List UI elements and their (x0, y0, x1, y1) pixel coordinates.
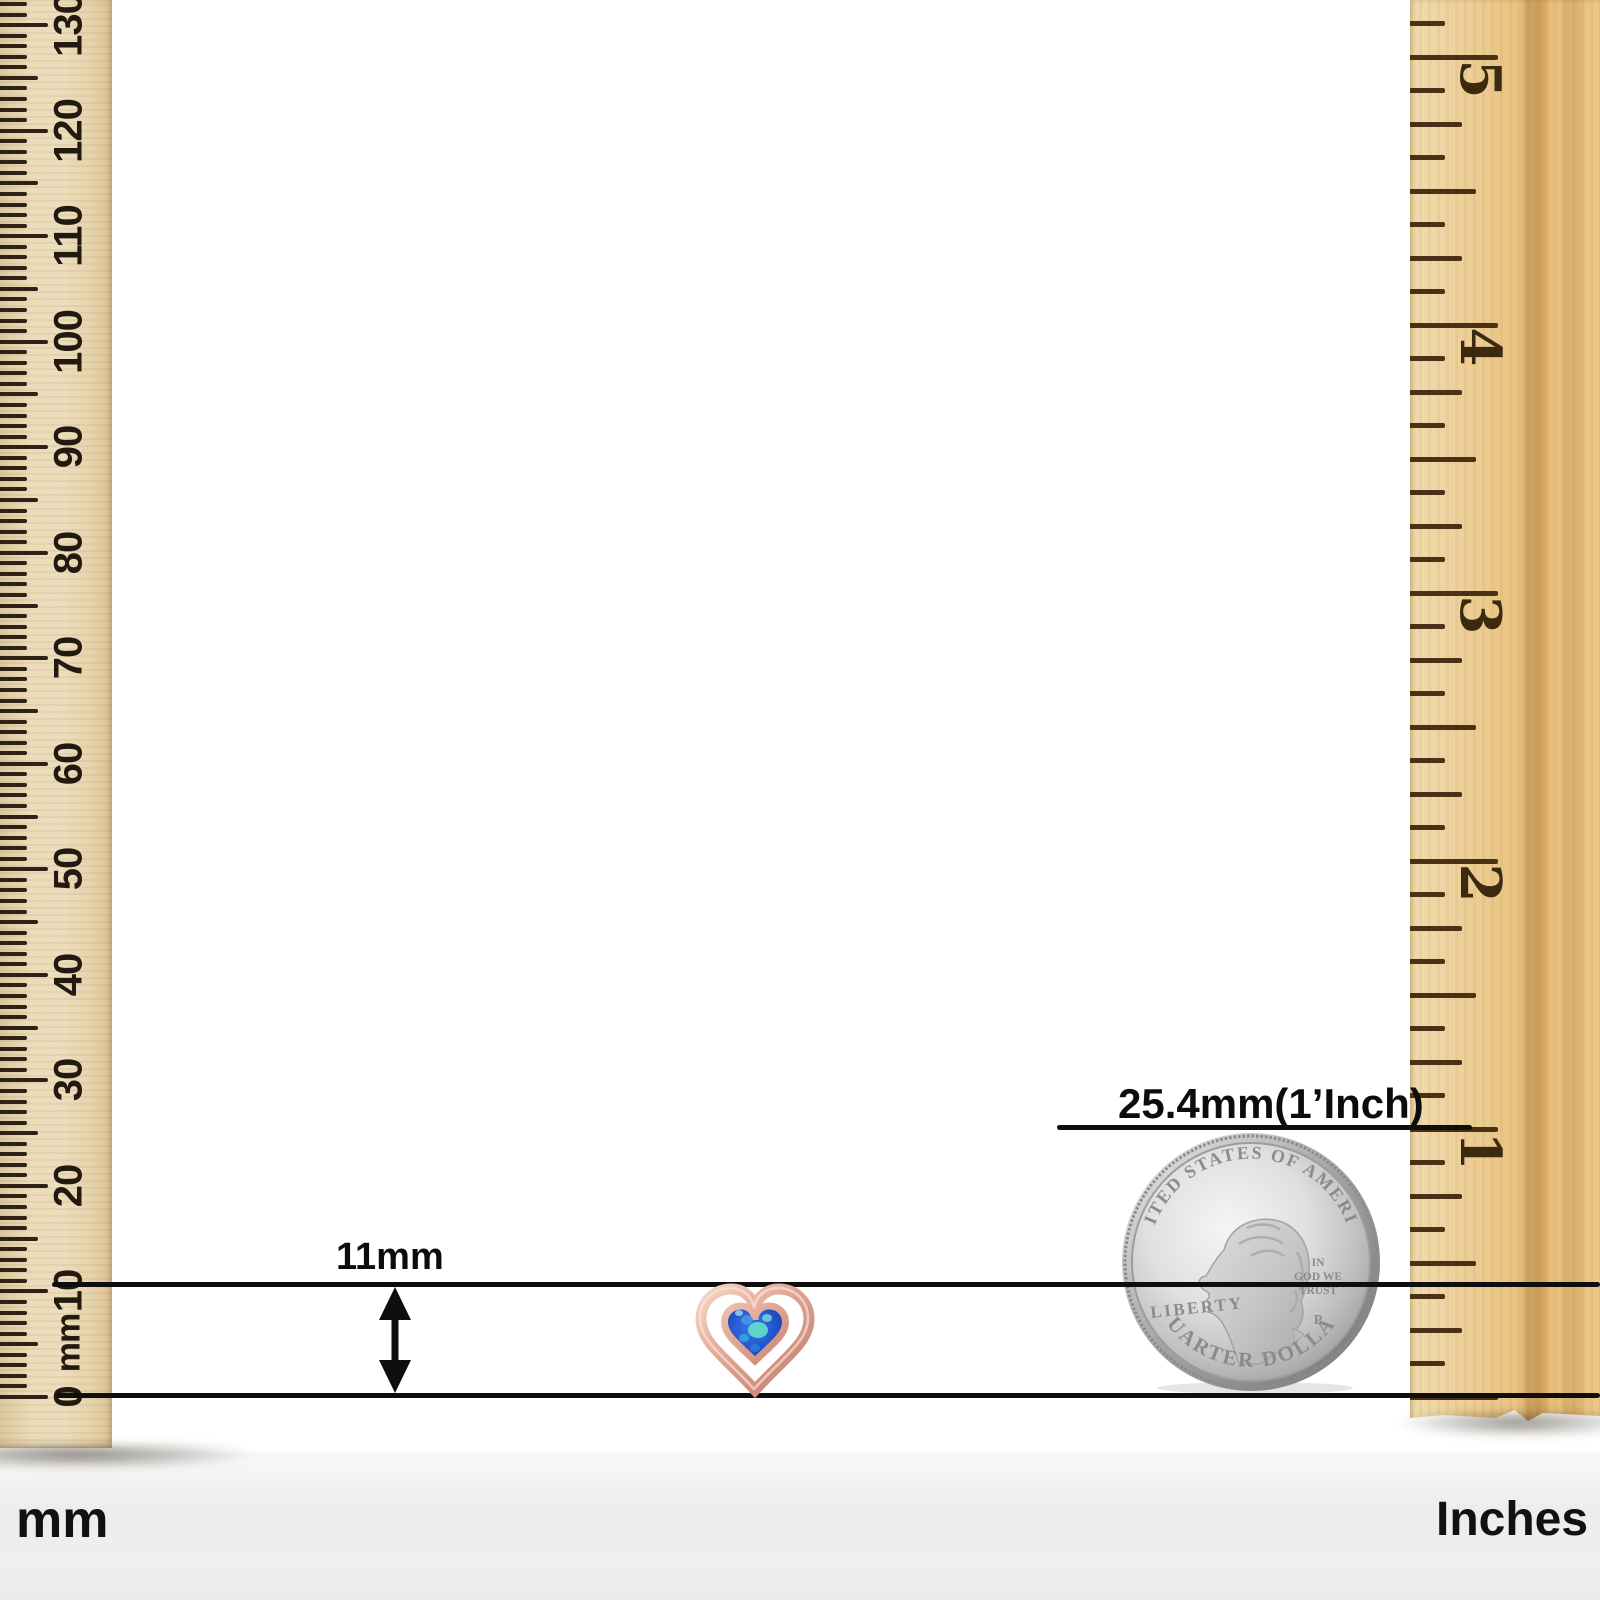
mm-scale-label-120: 120 (47, 99, 92, 163)
inch-tick (1410, 1361, 1445, 1366)
mm-tick (0, 1163, 27, 1167)
inch-tick (1410, 691, 1445, 696)
mm-tick (0, 340, 48, 344)
mm-tick (0, 931, 27, 935)
mm-tick (0, 1279, 27, 1283)
mm-tick (0, 1100, 27, 1104)
inch-tick (1410, 1328, 1462, 1333)
mm-tick (0, 1121, 27, 1125)
inch-tick (1410, 122, 1462, 127)
inch-tick (1410, 289, 1445, 294)
mm-tick (0, 720, 27, 724)
mm-tick (0, 2, 27, 6)
mm-tick (0, 255, 27, 259)
mm-tick (0, 1374, 27, 1378)
mm-tick (0, 709, 38, 713)
inch-tick (1410, 624, 1445, 629)
item-height-label: 11mm (336, 1236, 444, 1279)
inch-tick (1410, 423, 1445, 428)
mm-tick (0, 382, 27, 386)
mm-tick (0, 361, 27, 365)
inch-tick (1410, 155, 1445, 160)
inch-tick (1410, 524, 1462, 529)
mm-tick (0, 1216, 27, 1220)
mm-tick (0, 1268, 27, 1272)
heart-earring (692, 1278, 818, 1404)
mm-tick (0, 1300, 27, 1304)
inch-tick (1410, 1060, 1462, 1065)
mm-tick (0, 857, 27, 861)
mm-tick (0, 1078, 48, 1082)
inch-tick (1410, 457, 1476, 462)
mm-tick (0, 1152, 27, 1156)
inch-tick (1410, 825, 1445, 830)
height-line-top (52, 1282, 1600, 1287)
inch-tick (1410, 658, 1462, 663)
coin-mint-mark: P (1314, 1313, 1323, 1328)
mm-tick (0, 751, 27, 755)
inch-tick (1410, 892, 1445, 897)
mm-tick (0, 266, 27, 270)
inch-tick (1410, 1261, 1476, 1266)
mm-tick (0, 97, 27, 101)
mm-tick (0, 1015, 27, 1019)
mm-tick (0, 1110, 27, 1114)
product-size-diagram: 0mm102030405060708090100110120130 12345 (0, 0, 1600, 1600)
mm-tick (0, 572, 27, 576)
inch-scale-label-2: 2 (1447, 864, 1513, 903)
mm-tick (0, 1131, 38, 1135)
inch-scale-label-4: 4 (1447, 328, 1513, 367)
mm-scale-label-130: 130 (47, 0, 92, 57)
mm-tick (0, 1258, 27, 1262)
mm-tick (0, 836, 27, 840)
coin-size-line (1057, 1125, 1472, 1130)
mm-tick (0, 1036, 27, 1040)
inch-scale-label-5: 5 (1447, 60, 1513, 99)
mm-tick (0, 561, 27, 565)
mm-tick (0, 392, 38, 396)
mm-tick (0, 825, 27, 829)
mm-tick (0, 466, 27, 470)
mm-scale-label-110: 110 (47, 205, 92, 267)
inch-tick (1410, 926, 1462, 931)
mm-tick (0, 656, 48, 660)
height-line-bottom (56, 1393, 1600, 1398)
mm-tick (0, 1184, 48, 1188)
inch-tick (1410, 725, 1476, 730)
mm-tick (0, 994, 27, 998)
mm-tick (0, 477, 27, 481)
mm-tick (0, 86, 27, 90)
mm-tick (0, 699, 27, 703)
mm-scale-label-60: 60 (47, 743, 92, 786)
mm-tick (0, 213, 27, 217)
mm-tick (0, 319, 27, 323)
mm-tick (0, 276, 27, 280)
mm-tick (0, 1321, 27, 1325)
mm-tick (0, 762, 48, 766)
inch-tick (1410, 1227, 1445, 1232)
mm-tick (0, 920, 38, 924)
mm-scale-label-80: 80 (47, 532, 92, 575)
mm-tick (0, 403, 27, 407)
mm-tick (0, 973, 48, 977)
mm-scale-label-40: 40 (47, 954, 92, 997)
mm-tick (0, 614, 27, 618)
height-arrow-icon (368, 1286, 422, 1394)
mm-tick (0, 1363, 27, 1367)
mm-tick (0, 350, 27, 354)
mm-tick (0, 245, 27, 249)
mm-tick (0, 118, 27, 122)
mm-tick (0, 171, 27, 175)
mm-tick (0, 509, 27, 513)
inch-tick (1410, 189, 1476, 194)
mm-tick (0, 730, 27, 734)
mm-tick (0, 941, 27, 945)
inch-tick (1410, 1026, 1445, 1031)
mm-tick (0, 952, 27, 956)
mm-tick (0, 445, 48, 449)
mm-scale-label-10: 10 (47, 1270, 92, 1313)
mm-tick (0, 181, 38, 185)
mm-tick (0, 435, 27, 439)
mm-tick (0, 772, 27, 776)
mm-tick (0, 1311, 27, 1315)
mm-tick (0, 13, 27, 17)
mm-tick (0, 899, 27, 903)
mm-tick (0, 287, 38, 291)
mm-tick (0, 487, 27, 491)
mm-tick (0, 1353, 27, 1357)
inches-unit-label: Inches (1436, 1492, 1588, 1547)
mm-tick (0, 688, 27, 692)
mm-tick (0, 888, 27, 892)
inch-tick (1410, 557, 1445, 562)
mm-tick (0, 456, 27, 460)
inch-tick (1410, 490, 1445, 495)
mm-tick (0, 1237, 38, 1241)
mm-tick (0, 783, 27, 787)
mm-tick (0, 1289, 48, 1293)
mm-scale-label-20: 20 (47, 1165, 92, 1208)
inch-tick (1410, 390, 1462, 395)
mm-scale-label-90: 90 (47, 426, 92, 469)
mm-scale-label-100: 100 (47, 310, 92, 374)
mm-tick (0, 297, 27, 301)
mm-tick (0, 667, 27, 671)
mm-tick (0, 793, 27, 797)
mm-tick (0, 308, 27, 312)
mm-tick (0, 76, 38, 80)
mm-tick (0, 414, 27, 418)
mm-tick (0, 224, 27, 228)
mm-tick (0, 129, 48, 133)
mm-tick (0, 741, 27, 745)
inch-tick (1410, 88, 1445, 93)
inch-tick (1410, 1160, 1445, 1165)
inch-tick (1410, 1294, 1445, 1299)
inch-scale-label-3: 3 (1447, 596, 1513, 635)
mm-tick (0, 846, 27, 850)
mm-tick (0, 1342, 38, 1346)
mm-tick (0, 160, 27, 164)
inch-tick (1410, 222, 1445, 227)
mm-tick (0, 1205, 27, 1209)
coin-size-label: 25.4mm(1’Inch) (1118, 1080, 1424, 1128)
mm-tick (0, 962, 27, 966)
background-strip (0, 1452, 1600, 1600)
mm-tick (0, 646, 27, 650)
mm-tick (0, 1247, 27, 1251)
mm-tick (0, 150, 27, 154)
inch-tick (1410, 993, 1476, 998)
mm-tick (0, 1089, 27, 1093)
mm-tick (0, 551, 48, 555)
mm-tick (0, 983, 27, 987)
mm-unit-label: mm (16, 1490, 108, 1550)
millimeter-ruler: 0mm102030405060708090100110120130 (0, 0, 112, 1448)
mm-scale-label-30: 30 (47, 1059, 92, 1102)
mm-tick (0, 604, 38, 608)
mm-tick (0, 1142, 27, 1146)
inch-tick (1410, 356, 1445, 361)
mm-tick (0, 1226, 27, 1230)
inch-tick (1410, 256, 1462, 261)
inch-tick (1410, 792, 1462, 797)
mm-tick (0, 677, 27, 681)
inch-tick (1410, 1194, 1462, 1199)
mm-tick (0, 1384, 27, 1388)
mm-tick (0, 804, 27, 808)
mm-tick (0, 910, 27, 914)
mm-tick (0, 1047, 27, 1051)
mm-tick (0, 1057, 27, 1061)
mm-tick (0, 34, 27, 38)
inch-tick (1410, 758, 1445, 763)
mm-tick (0, 867, 48, 871)
mm-tick (0, 625, 27, 629)
mm-tick (0, 203, 27, 207)
mm-tick (0, 234, 48, 238)
mm-tick (0, 371, 27, 375)
mm-tick (0, 1005, 27, 1009)
mm-tick (0, 1194, 27, 1198)
mm-tick (0, 498, 38, 502)
mm-tick (0, 1068, 27, 1072)
mm-tick (0, 582, 27, 586)
mm-tick (0, 65, 27, 69)
inch-ruler: 12345 (1410, 0, 1600, 1422)
mm-tick (0, 878, 27, 882)
mm-tick (0, 424, 27, 428)
mm-tick (0, 44, 27, 48)
mm-tick (0, 139, 27, 143)
mm-scale-unit-label: mm (50, 1314, 89, 1372)
mm-tick (0, 1332, 27, 1336)
mm-tick (0, 540, 27, 544)
mm-tick (0, 635, 27, 639)
mm-tick (0, 23, 48, 27)
mm-tick (0, 1395, 48, 1399)
mm-tick (0, 1026, 38, 1030)
mm-tick (0, 108, 27, 112)
mm-tick (0, 1173, 27, 1177)
mm-scale-label-70: 70 (47, 637, 92, 680)
coin-motto-line-1: IN (1312, 1257, 1325, 1269)
inch-tick (1410, 959, 1445, 964)
mm-tick (0, 815, 38, 819)
mm-tick (0, 192, 27, 196)
inch-tick (1410, 21, 1445, 26)
mm-scale-label-50: 50 (47, 848, 92, 891)
inch-scale-label-1: 1 (1447, 1132, 1513, 1171)
mm-tick (0, 530, 27, 534)
mm-tick (0, 593, 27, 597)
mm-tick (0, 329, 27, 333)
mm-tick (0, 519, 27, 523)
mm-tick (0, 55, 27, 59)
quarter-coin: UNITED STATES OF AMERICA QUARTER DOLLAR … (1121, 1132, 1381, 1396)
